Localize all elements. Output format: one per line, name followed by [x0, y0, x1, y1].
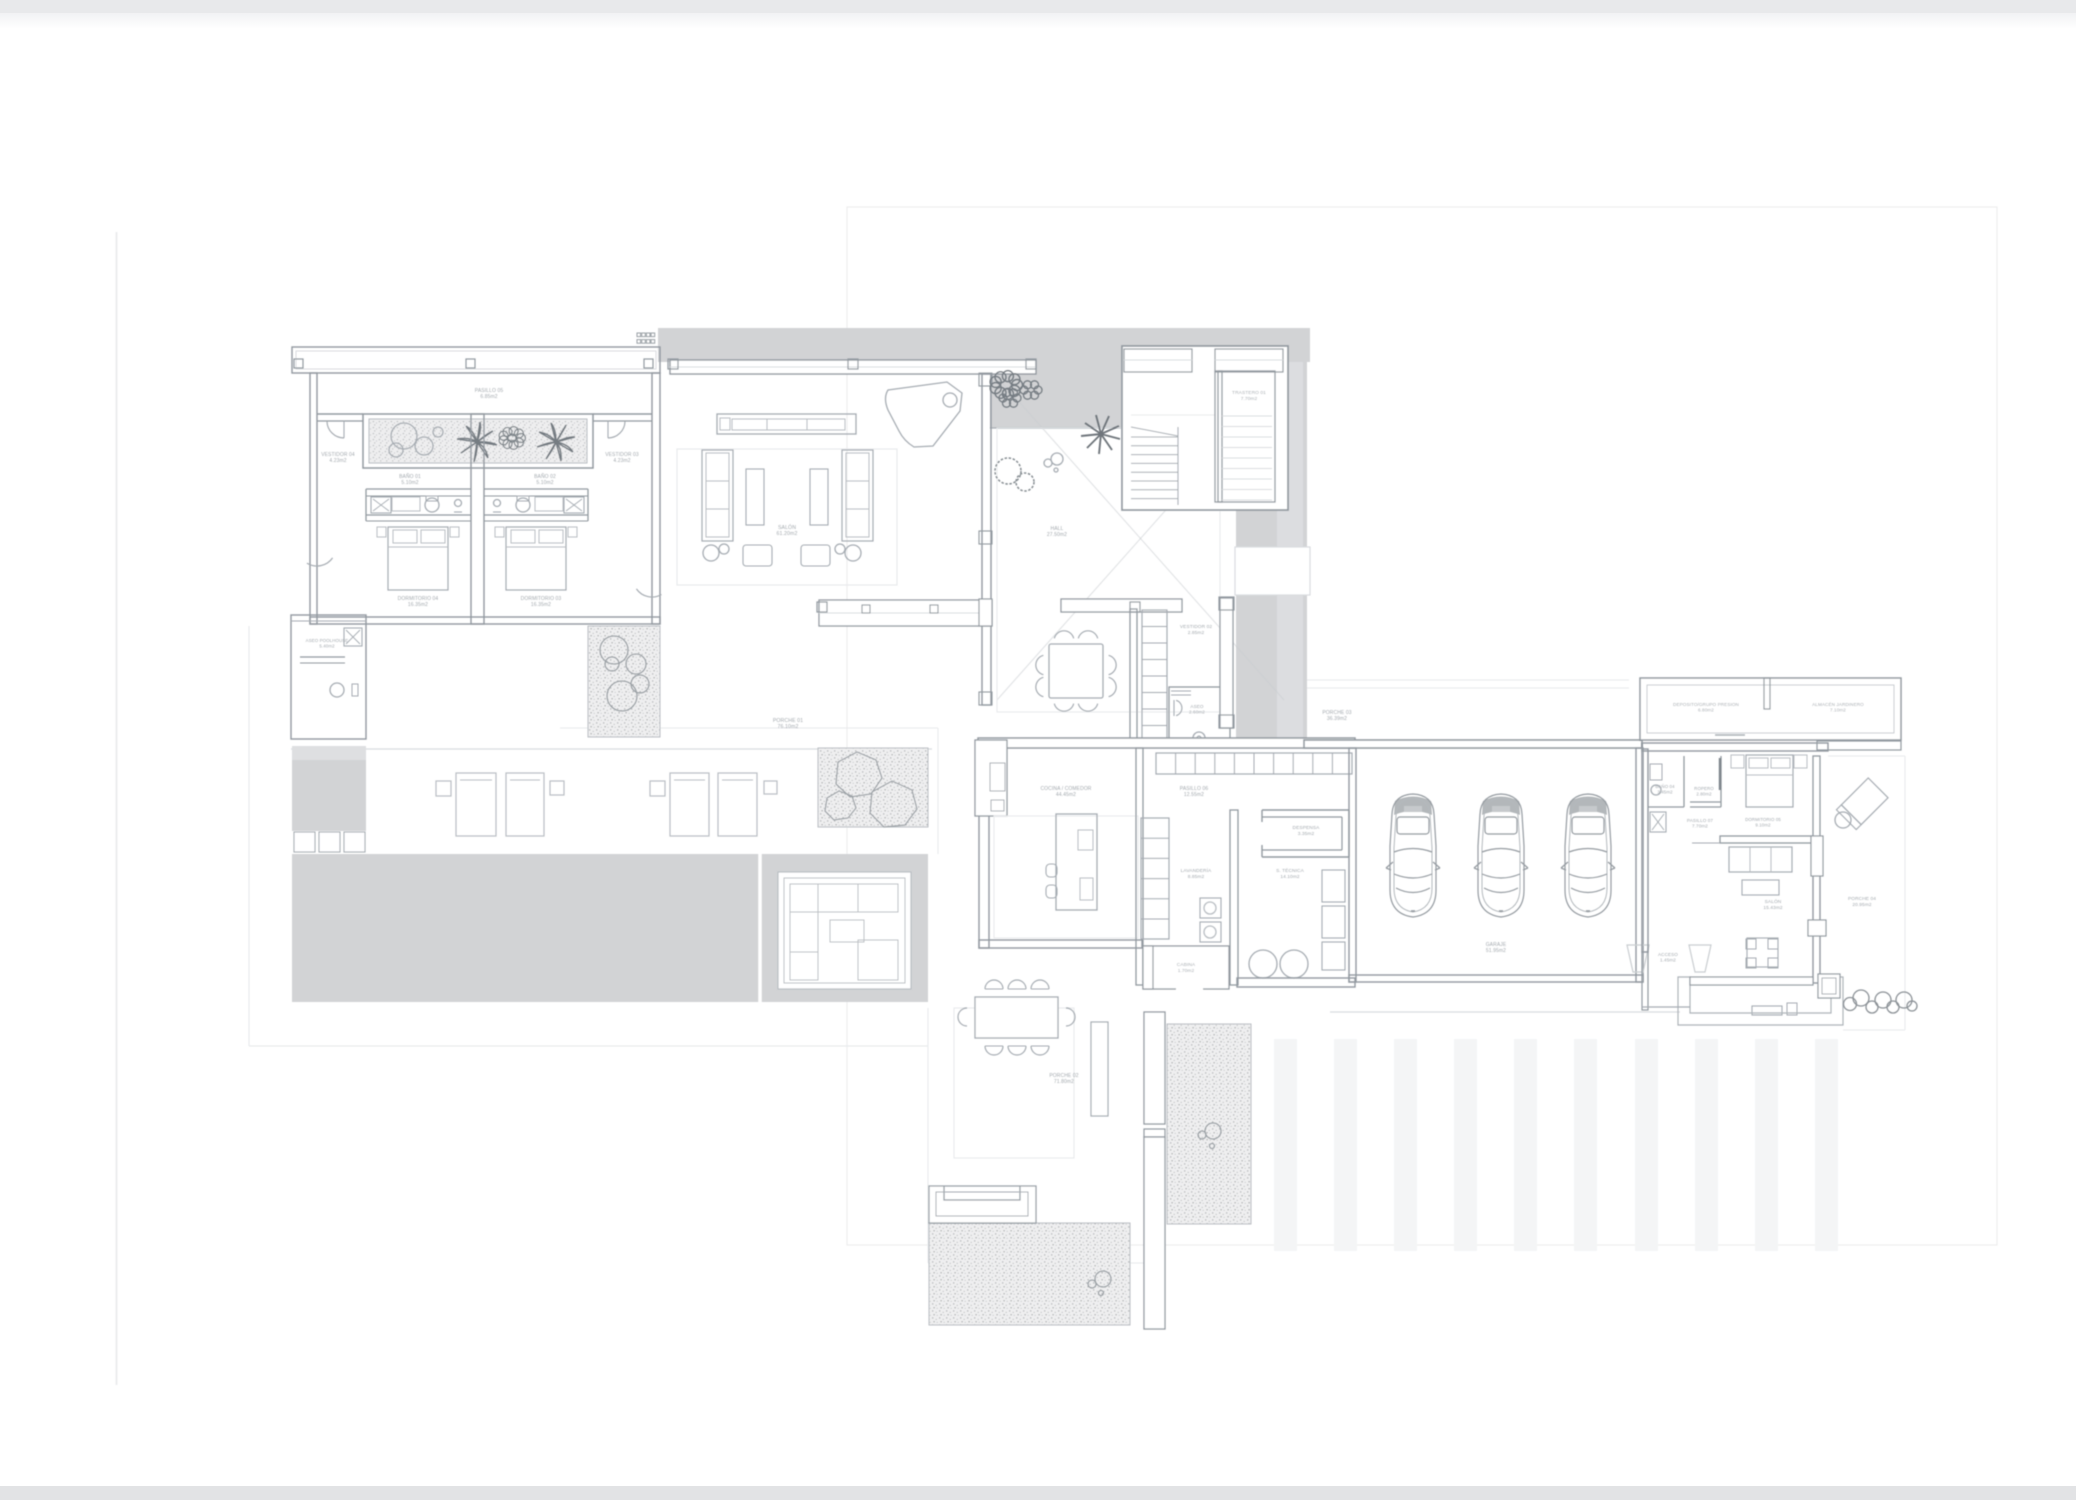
svg-text:16.35m2: 16.35m2 [408, 602, 428, 608]
svg-text:14.10m2: 14.10m2 [1280, 874, 1300, 880]
svg-text:ASEO POOLHOUSE: ASEO POOLHOUSE [306, 638, 349, 643]
svg-text:7.70m2: 7.70m2 [1241, 396, 1258, 402]
svg-text:61.20m2: 61.20m2 [777, 531, 798, 537]
svg-text:CABINA: CABINA [1177, 962, 1196, 968]
svg-text:5.10m2: 5.10m2 [536, 480, 553, 486]
svg-text:4.23m2: 4.23m2 [329, 458, 346, 464]
svg-text:LAVANDERÍA: LAVANDERÍA [1181, 867, 1212, 874]
svg-text:1.45m2: 1.45m2 [1660, 958, 1676, 963]
svg-text:4.23m2: 4.23m2 [613, 458, 630, 464]
svg-text:71.80m2: 71.80m2 [1054, 1079, 1074, 1085]
svg-text:2.85m2: 2.85m2 [1188, 630, 1205, 636]
svg-text:6.85m2: 6.85m2 [480, 394, 497, 400]
svg-text:51.95m2: 51.95m2 [1486, 948, 1506, 954]
svg-text:7.70m2: 7.70m2 [1692, 824, 1708, 829]
svg-text:BAÑO 04: BAÑO 04 [1655, 784, 1675, 789]
svg-text:DORMITORIO 05: DORMITORIO 05 [1745, 817, 1781, 822]
svg-text:36.39m2: 36.39m2 [1327, 716, 1347, 722]
svg-text:BAÑO 01: BAÑO 01 [399, 473, 421, 480]
svg-text:9.10m2: 9.10m2 [1755, 822, 1771, 827]
svg-text:6.80m2: 6.80m2 [1698, 708, 1714, 713]
svg-text:5.10m2: 5.10m2 [401, 480, 418, 486]
svg-text:7.10m2: 7.10m2 [1830, 708, 1846, 713]
svg-text:SALÓN: SALÓN [778, 524, 796, 531]
svg-text:VESTIDOR 02: VESTIDOR 02 [1180, 624, 1213, 630]
svg-text:DESPENSA: DESPENSA [1293, 825, 1321, 831]
svg-text:1.70m2: 1.70m2 [1178, 968, 1195, 974]
svg-text:ASEO: ASEO [1190, 704, 1203, 709]
svg-text:15.43m2: 15.43m2 [1763, 905, 1783, 911]
svg-text:SALÓN: SALÓN [1765, 898, 1782, 905]
svg-text:ROPERO: ROPERO [1694, 786, 1714, 791]
svg-text:S. TÉCNICA: S. TÉCNICA [1276, 867, 1305, 874]
svg-text:TRASTERO 01: TRASTERO 01 [1232, 390, 1266, 396]
svg-text:20.95m2: 20.95m2 [1852, 902, 1872, 908]
svg-text:ACCESO: ACCESO [1658, 952, 1678, 957]
svg-text:76.10m2: 76.10m2 [778, 724, 799, 730]
svg-text:44.45m2: 44.45m2 [1056, 792, 1076, 798]
svg-text:3.35m2: 3.35m2 [1298, 831, 1315, 837]
svg-text:DEPOSITO/GRUPO PRESION: DEPOSITO/GRUPO PRESION [1673, 702, 1739, 707]
svg-text:2.60m2: 2.60m2 [1189, 710, 1205, 715]
svg-text:5.40m2: 5.40m2 [319, 643, 335, 648]
svg-text:PORCHE 01: PORCHE 01 [773, 718, 803, 724]
svg-text:BAÑO 02: BAÑO 02 [534, 473, 556, 480]
svg-text:8.85m2: 8.85m2 [1188, 874, 1205, 880]
svg-text:27.50m2: 27.50m2 [1047, 532, 1067, 538]
svg-text:PORCHE 04: PORCHE 04 [1848, 896, 1876, 902]
svg-text:ALMACÉN JARDINERO: ALMACÉN JARDINERO [1812, 701, 1864, 707]
svg-text:12.55m2: 12.55m2 [1184, 792, 1204, 798]
svg-text:16.35m2: 16.35m2 [531, 602, 551, 608]
svg-text:PASILLO 07: PASILLO 07 [1687, 818, 1714, 823]
svg-text:2.80m2: 2.80m2 [1696, 791, 1712, 796]
